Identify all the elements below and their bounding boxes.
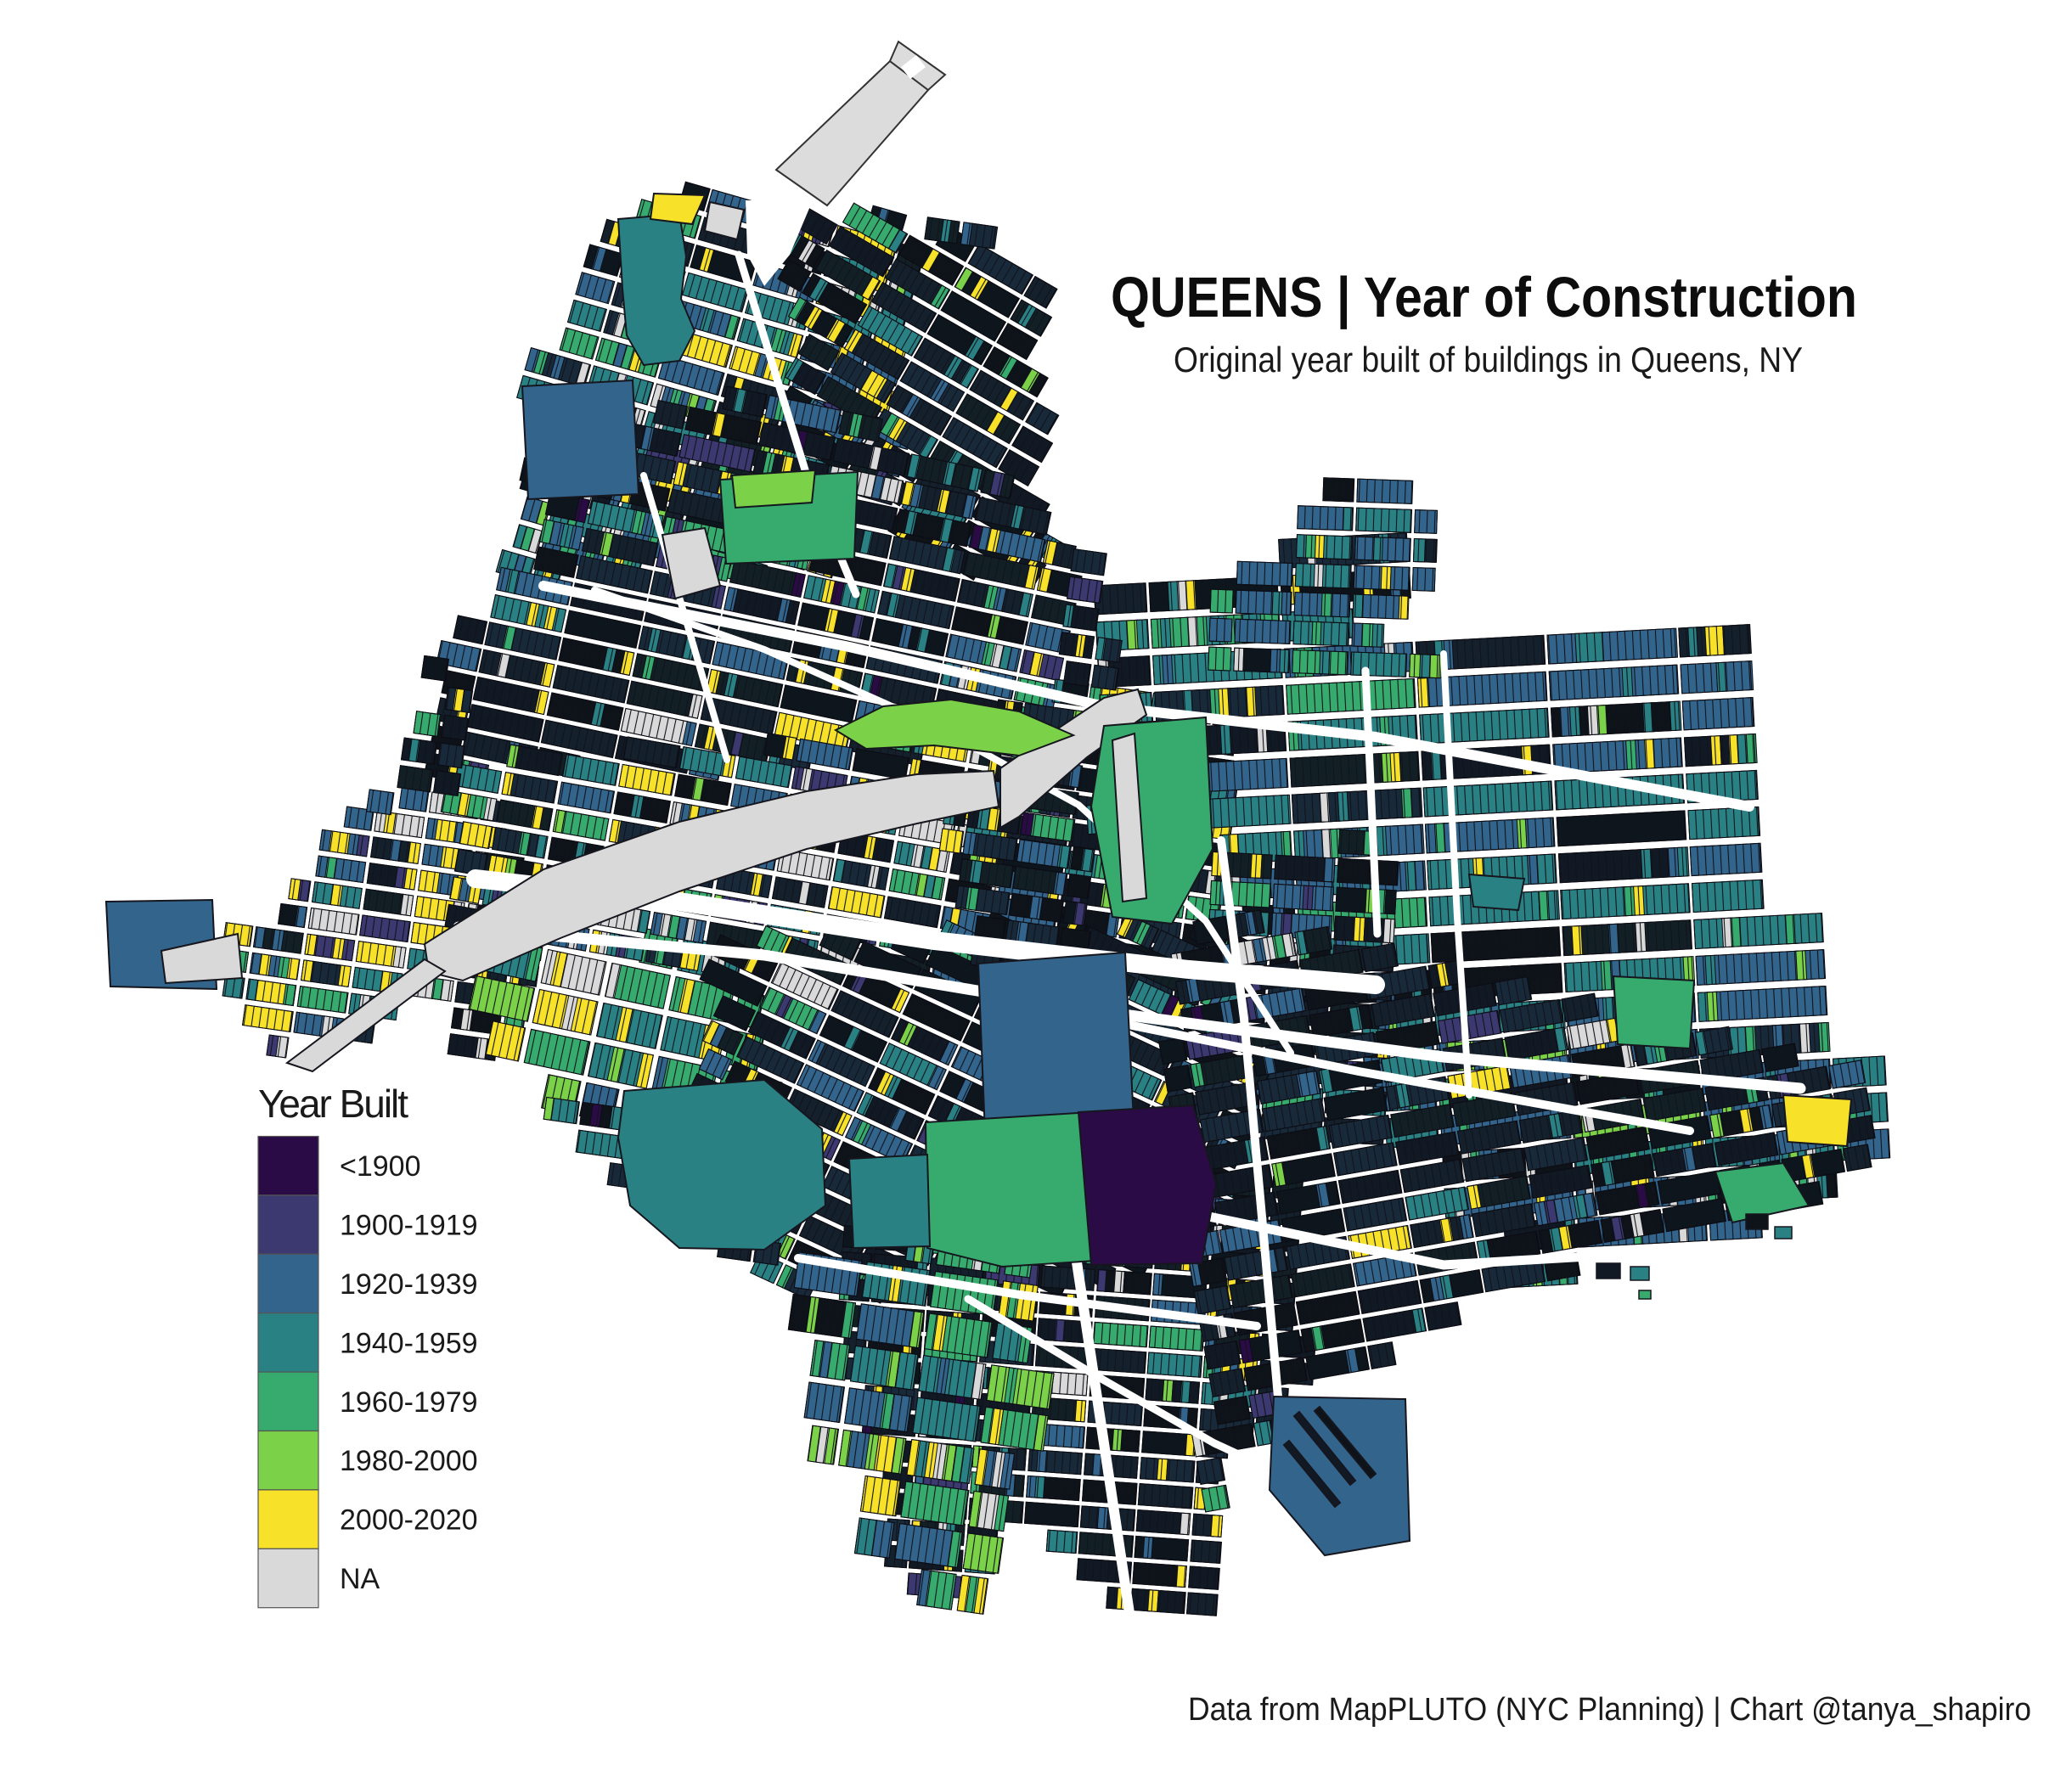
svg-text:<1900: <1900 bbox=[340, 1150, 421, 1183]
svg-text:1900-1919: 1900-1919 bbox=[340, 1210, 478, 1242]
svg-text:1940-1959: 1940-1959 bbox=[340, 1327, 478, 1359]
svg-text:NA: NA bbox=[340, 1563, 380, 1595]
svg-text:Year Built: Year Built bbox=[258, 1082, 408, 1126]
svg-text:QUEENS | Year of Construction: QUEENS | Year of Construction bbox=[1111, 266, 1857, 330]
svg-text:1960-1979: 1960-1979 bbox=[340, 1386, 478, 1419]
svg-text:Original year built of buildin: Original year built of buildings in Quee… bbox=[1174, 340, 1803, 379]
svg-text:1980-2000: 1980-2000 bbox=[340, 1445, 478, 1477]
svg-text:Data from MapPLUTO (NYC Planni: Data from MapPLUTO (NYC Planning) | Char… bbox=[1188, 1692, 2031, 1728]
svg-text:1920-1939: 1920-1939 bbox=[340, 1268, 478, 1301]
svg-text:2000-2020: 2000-2020 bbox=[340, 1504, 478, 1537]
